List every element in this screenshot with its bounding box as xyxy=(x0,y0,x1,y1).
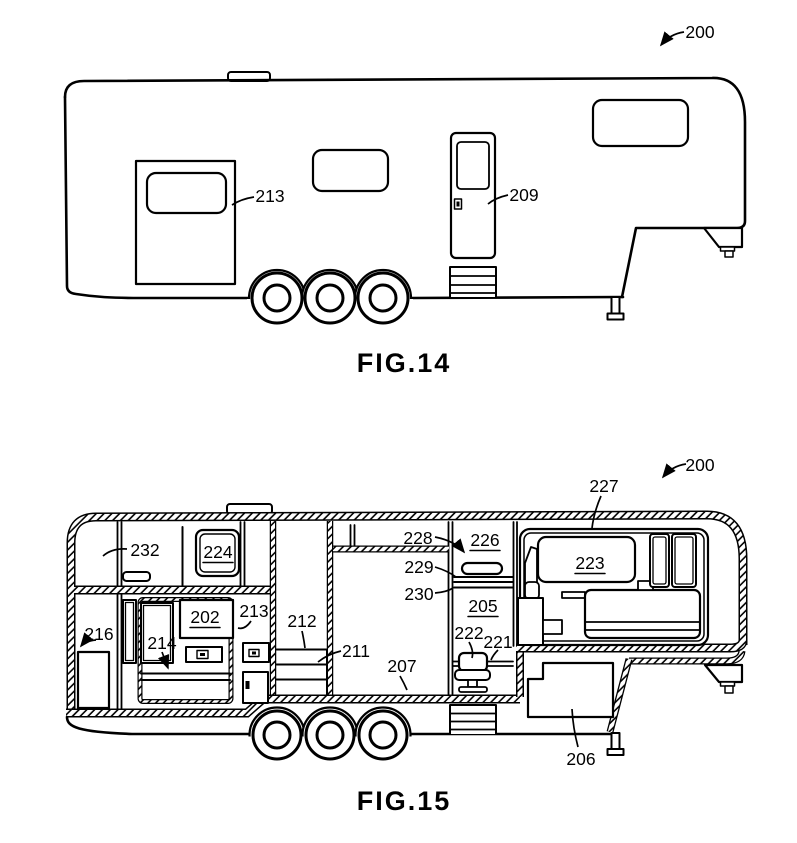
front-bedroom xyxy=(518,529,708,645)
counter-lines xyxy=(141,674,230,681)
lavatory-sink xyxy=(462,563,502,574)
entry-steps xyxy=(450,267,496,297)
fig15-caption: FIG.15 xyxy=(357,786,452,816)
stairwell-steps xyxy=(277,650,328,696)
skirt-line-left xyxy=(67,717,249,734)
wheel-hub xyxy=(370,285,396,311)
bath-wall-left xyxy=(449,522,453,697)
wheel-group xyxy=(247,270,413,344)
wheel-hub xyxy=(317,285,343,311)
ref-label-209: 209 xyxy=(509,185,538,205)
ref-label-229: 229 xyxy=(404,557,433,577)
slideout-box xyxy=(136,161,235,284)
leader-230 xyxy=(435,588,453,593)
ref-label-222: 222 xyxy=(454,623,483,643)
drawer-handle xyxy=(252,652,256,655)
step-box xyxy=(543,620,562,634)
drawer-handle xyxy=(200,653,205,656)
patent-drawing: 200 213 209 FIG.14 xyxy=(0,0,797,843)
cabinet-wall xyxy=(241,522,245,588)
leader-213 xyxy=(238,621,251,628)
landing-jack xyxy=(608,297,624,320)
leader-207 xyxy=(400,676,407,690)
ref-label-206: 206 xyxy=(566,749,595,769)
ref-label-227: 227 xyxy=(589,476,618,496)
ref-label-213: 213 xyxy=(255,186,284,206)
entry-door xyxy=(451,133,495,258)
ledge xyxy=(562,592,585,598)
wheel-hub xyxy=(264,722,290,748)
leader-232 xyxy=(103,549,127,556)
cushion xyxy=(525,582,539,599)
ref-label-223: 223 xyxy=(575,553,604,573)
ref-label-224: 224 xyxy=(203,542,232,562)
fig14-exterior-view: 200 213 209 FIG.14 xyxy=(65,22,745,378)
wheel-hub xyxy=(370,722,396,748)
ref-label-230: 230 xyxy=(404,584,433,604)
ref-label-213: 213 xyxy=(239,601,268,621)
wheel-hub xyxy=(264,285,290,311)
door-handle xyxy=(246,681,250,689)
nightstand xyxy=(518,598,543,645)
leader-200 xyxy=(663,464,686,477)
entry-steps xyxy=(450,705,496,734)
fig14-caption: FIG.14 xyxy=(357,348,452,378)
ref-label-202: 202 xyxy=(190,607,219,627)
ref-label-214: 214 xyxy=(147,633,176,653)
counter-edge-lines xyxy=(454,577,513,588)
hitch-pin-box xyxy=(704,228,742,257)
ref-label-205: 205 xyxy=(468,596,497,616)
ref-label-200: 200 xyxy=(685,22,714,42)
leader-212 xyxy=(302,631,305,648)
ref-label-216: 216 xyxy=(84,624,113,644)
interior-walls xyxy=(118,522,518,710)
ref-label-212: 212 xyxy=(287,611,316,631)
ref-label-232: 232 xyxy=(130,540,159,560)
kingpin xyxy=(725,686,733,693)
front-window xyxy=(593,100,688,146)
vent-drawer xyxy=(123,572,150,581)
ref-label-228: 228 xyxy=(403,528,432,548)
mid-window xyxy=(313,150,388,191)
storage-box-206 xyxy=(528,663,613,717)
soffit-divider xyxy=(351,525,355,549)
wheel-hub xyxy=(317,722,343,748)
bath-wall-right xyxy=(514,522,518,646)
ref-label-200: 200 xyxy=(685,455,714,475)
toilet-222 xyxy=(455,653,490,692)
patent-sheet: 200 213 209 FIG.14 xyxy=(0,0,797,843)
ref-label-221: 221 xyxy=(483,632,512,652)
entry-area xyxy=(243,643,269,703)
trailer-body-bottom-right xyxy=(411,297,623,298)
fig15-cutaway-view: 232 224 216 214 202 213 212 211 207 228 … xyxy=(66,455,743,816)
ref-label-207: 207 xyxy=(387,656,416,676)
leader-200 xyxy=(661,32,684,45)
ref-label-211: 211 xyxy=(342,641,370,661)
appliance-216 xyxy=(78,652,109,708)
landing-jack xyxy=(608,733,624,755)
kingpin xyxy=(725,251,733,257)
hitch-pin-box xyxy=(705,665,742,693)
ref-label-226: 226 xyxy=(470,530,499,550)
wall-kitchen-left xyxy=(118,522,122,710)
